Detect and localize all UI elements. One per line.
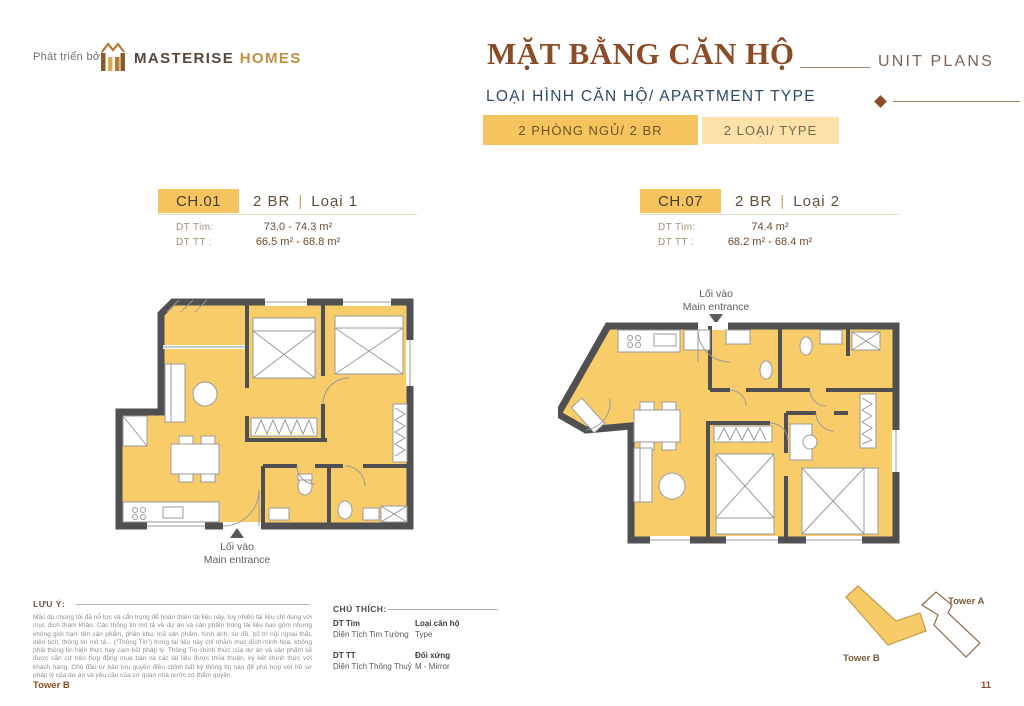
footer-tower-label: Tower B [33, 680, 70, 691]
notes-divider [76, 604, 310, 605]
diamond-icon [874, 95, 887, 108]
legend: DT Tim Diện Tích Tim Tường Loại căn hộ T… [333, 619, 503, 671]
entrance-label-en-ch07: Main entrance [661, 301, 771, 313]
tab-2-bedroom[interactable]: 2 PHÒNG NGỦ/ 2 BR [483, 115, 698, 145]
separator: | [772, 193, 793, 210]
legend-item: DT TT Diện Tích Thông Thuỷ [333, 651, 415, 671]
unit-type-ch07: 2 BR|Loại 2 [735, 193, 840, 210]
unit-divider-ch07 [640, 214, 899, 215]
subtitle: LOẠI HÌNH CĂN HỘ/ APARTMENT TYPE [486, 88, 816, 106]
legend-item: Loại căn hộ Type [415, 619, 503, 639]
tower-b-label: Tower B [843, 653, 880, 664]
area-tim-value-ch01: 73.0 - 74.3 m² [233, 221, 363, 233]
legend-definition: Diện Tích Tim Tường [333, 630, 415, 639]
legend-term: DT Tim [333, 619, 415, 628]
legend-label: CHÚ THÍCH: [333, 604, 387, 614]
subtitle-divider [893, 101, 1020, 102]
tower-a-label: Tower A [948, 596, 984, 607]
unit-variant: Loại 2 [793, 193, 840, 210]
unit-code-badge-ch07: CH.07 [640, 189, 721, 213]
entrance-label-en-ch01: Main entrance [182, 554, 292, 566]
page-title: MẶT BẰNG CĂN HỘ [487, 36, 794, 72]
area-tim-value-ch07: 74.4 m² [705, 221, 835, 233]
developed-by-label: Phát triển bởi [33, 51, 103, 63]
unit-bedrooms: 2 BR [735, 193, 772, 210]
entrance-label-vi-ch01: Lối vào [182, 541, 292, 553]
legend-term: Đối xứng [415, 651, 503, 660]
tower-b-shape [846, 586, 926, 645]
area-tt-value-ch01: 66.5 m² - 68.8 m² [233, 236, 363, 248]
unit-variant: Loại 1 [311, 193, 358, 210]
legend-divider [388, 609, 498, 610]
unit-code-badge-ch01: CH.01 [158, 189, 239, 213]
page-title-en: UNIT PLANS [878, 53, 994, 71]
unit-bedrooms: 2 BR [253, 193, 290, 210]
masterise-logo-icon [99, 40, 127, 72]
unit-type-ch01: 2 BR|Loại 1 [253, 193, 358, 210]
legend-term: Loại căn hộ [415, 619, 503, 628]
area-tim-label-ch01: DT Tim: [176, 222, 214, 233]
entrance-arrow-icon-ch01 [230, 528, 244, 538]
legend-term: DT TT [333, 651, 415, 660]
legend-definition: M - Mirror [415, 662, 503, 671]
floorplan-ch01 [105, 288, 435, 548]
notes-body: Mặc dù chúng tôi đã nỗ lực và cẩn trọng … [33, 614, 312, 680]
area-tt-value-ch07: 68.2 m² - 68.4 m² [705, 236, 835, 248]
unit-plans-page: Phát triển bởi MASTERISE HOMES MẶT BẰNG … [0, 0, 1024, 706]
page-number: 11 [981, 680, 991, 691]
unit-divider-ch01 [158, 214, 417, 215]
area-tt-label-ch01: DT TT : [176, 237, 212, 248]
brand-secondary: HOMES [240, 50, 302, 67]
entrance-label-vi-ch07: Lối vào [661, 288, 771, 300]
brand-name: MASTERISE HOMES [134, 50, 302, 67]
legend-definition: Type [415, 630, 503, 639]
notes-label: LƯU Ý: [33, 599, 65, 609]
legend-definition: Diện Tích Thông Thuỷ [333, 662, 415, 671]
area-tt-label-ch07: DT TT : [658, 237, 694, 248]
tab-2-types[interactable]: 2 LOẠI/ TYPE [702, 117, 839, 144]
area-tim-label-ch07: DT Tim: [658, 222, 696, 233]
legend-item: Đối xứng M - Mirror [415, 651, 503, 671]
legend-item: DT Tim Diện Tích Tim Tường [333, 619, 415, 639]
title-divider [800, 67, 870, 68]
floorplan-ch07 [558, 318, 908, 568]
brand-primary: MASTERISE [134, 50, 234, 67]
separator: | [290, 193, 311, 210]
